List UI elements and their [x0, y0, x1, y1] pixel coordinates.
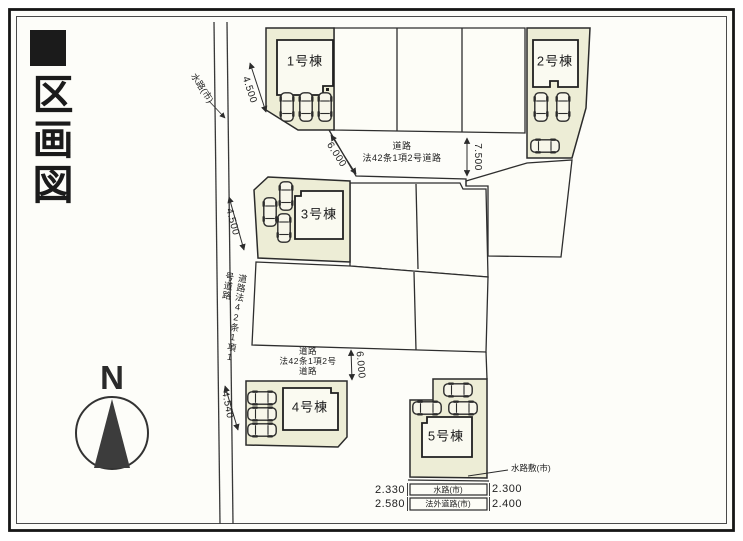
- site-plan-drawing: [0, 0, 743, 541]
- top-road-label-line1: 道路: [392, 141, 411, 151]
- lot-row3-white: [252, 262, 488, 352]
- car-icon: [299, 93, 314, 121]
- lot-plan-page: 区画図 N 1号棟 2号棟 3号棟 4号棟 5号棟 道路 法42条1項2号道路 …: [0, 0, 743, 541]
- dim-2300: 2.300: [492, 483, 522, 496]
- building-4-label: 4号棟: [292, 401, 328, 416]
- building-5-label: 5号棟: [428, 430, 464, 445]
- car-icon: [248, 423, 276, 438]
- dim-2400: 2.400: [492, 498, 522, 511]
- lot-row2-white: [350, 183, 488, 277]
- middle-road-label-line3: 道路: [299, 367, 317, 377]
- car-icon: [534, 93, 549, 121]
- title-square-icon: [30, 30, 66, 66]
- car-icon: [263, 198, 278, 226]
- page-title: 区画図: [28, 73, 69, 208]
- car-icon: [413, 401, 441, 416]
- top-road-label-line2: 法42条1項2号道路: [362, 153, 441, 163]
- car-icon: [318, 93, 333, 121]
- car-icon: [444, 383, 472, 398]
- car-icon: [280, 93, 295, 121]
- building-1-label: 1号棟: [287, 55, 323, 70]
- car-icon: [449, 401, 477, 416]
- car-icon: [277, 214, 292, 242]
- car-icon: [248, 391, 276, 406]
- strip-road-label: 法外道路(市): [425, 499, 470, 508]
- strip-waterway-label: 水路(市): [433, 485, 462, 494]
- car-icon: [248, 407, 276, 422]
- title-block: 区画図: [28, 30, 69, 208]
- building-2-label: 2号棟: [537, 55, 573, 70]
- dim-2580: 2.580: [367, 498, 405, 511]
- dim-6000-middle: 6.000: [353, 351, 367, 379]
- car-icon: [279, 182, 294, 210]
- building-3-label: 3号棟: [301, 208, 337, 223]
- dim-7500: 7.500: [471, 143, 483, 171]
- waterway-bed-label: 水路敷(市): [511, 464, 551, 474]
- dim-2330: 2.330: [367, 484, 405, 497]
- car-icon: [556, 93, 571, 121]
- lot-row1-white: [334, 28, 525, 133]
- car-icon: [531, 139, 559, 154]
- north-label: N: [96, 359, 128, 397]
